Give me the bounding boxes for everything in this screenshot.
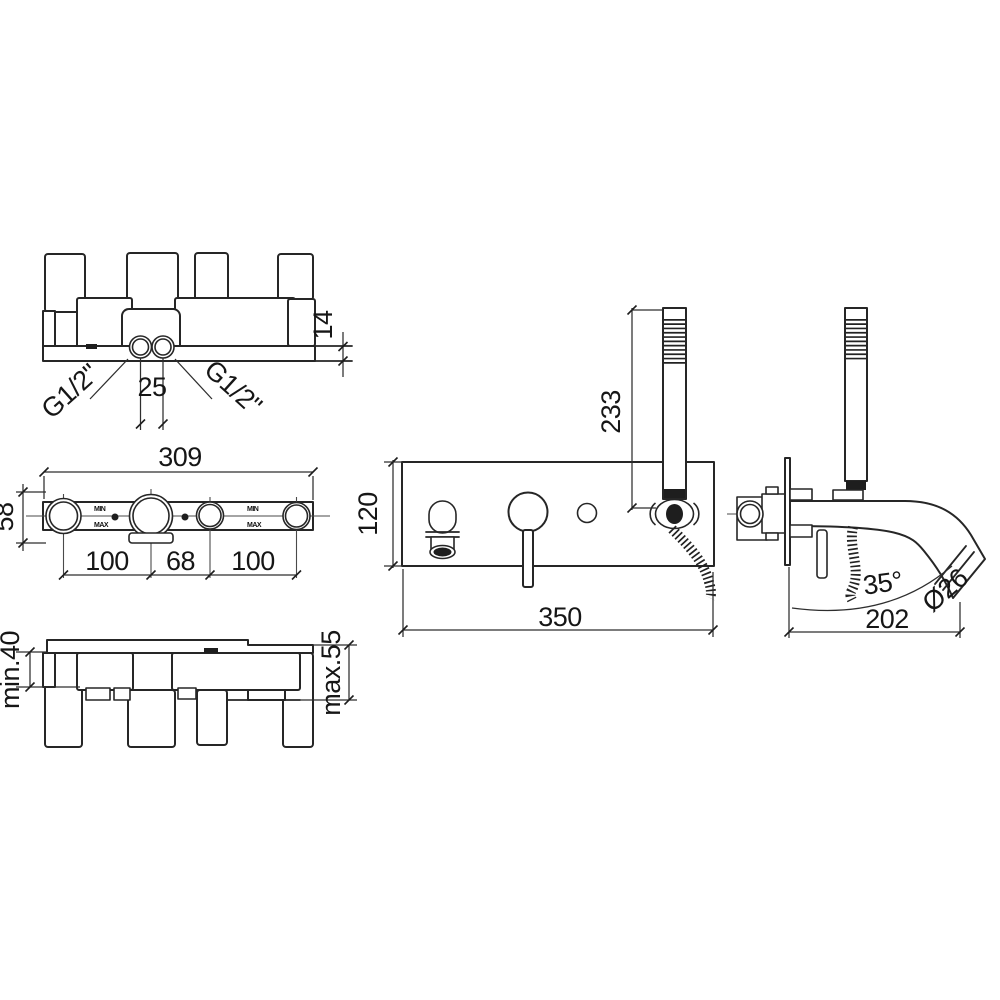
min-mark: MIN <box>247 506 259 513</box>
dim-g12-right: G1/2" <box>175 354 267 420</box>
view-body-face: MIN MAX MIN MAX 309 58 100 <box>0 442 330 580</box>
handle-lever <box>523 530 533 587</box>
body-depth-outline <box>43 640 313 747</box>
rail-mark <box>86 344 97 349</box>
dim-58: 58 <box>0 484 46 551</box>
max-mark: MAX <box>247 522 262 529</box>
dim-max55-label: max.55 <box>316 630 346 716</box>
holder-arm <box>833 490 863 500</box>
dim-25-label: 25 <box>137 372 166 402</box>
handle-lever-side <box>817 530 827 578</box>
dim-100-right-label: 100 <box>231 546 275 576</box>
dim-100-left-label: 100 <box>85 546 129 576</box>
dim-25: 25 <box>136 358 168 430</box>
dim-min40-label: min.40 <box>0 631 25 709</box>
dim-120-label: 120 <box>353 492 383 536</box>
thread-label-right: G1/2" <box>199 354 268 420</box>
thread-label-left: G1/2" <box>36 358 105 424</box>
dim-202-label: 202 <box>865 604 909 634</box>
dim-100-68-100: 100 68 100 <box>59 546 301 580</box>
dim-350-label: 350 <box>538 602 582 632</box>
screw-dot <box>112 514 119 521</box>
dim-120: 120 <box>353 458 403 571</box>
min-mark: MIN <box>94 506 106 513</box>
technical-drawing-page: 25 G1/2" G1/2" 14 <box>0 0 1000 1000</box>
view-body-depth: min.40 max.55 <box>0 630 357 747</box>
dim-58-label: 58 <box>0 502 19 531</box>
valve-body-side <box>727 487 786 540</box>
aerator <box>434 548 452 557</box>
dim-233-label: 233 <box>596 390 626 434</box>
max-mark: MAX <box>94 522 109 529</box>
dim-350: 350 <box>399 569 718 637</box>
dim-14-label: 14 <box>308 310 338 340</box>
view-trim-front: 233 120 350 <box>353 306 718 638</box>
dim-68-label: 68 <box>166 546 195 576</box>
dim-g12-left: G1/2" <box>36 358 128 424</box>
view-body-front: 25 G1/2" G1/2" 14 <box>36 253 352 430</box>
dim-309-label: 309 <box>158 442 202 472</box>
handshower-side <box>833 308 867 500</box>
view-trim-side: 35° Ø26 202 <box>727 308 985 638</box>
rail-mark <box>204 648 218 653</box>
diverter-knob <box>578 504 597 523</box>
dim-309: 309 <box>40 442 318 500</box>
body-front-outline <box>43 253 352 361</box>
dim-35deg-label: 35° <box>861 565 904 600</box>
screw-dot <box>182 514 189 521</box>
bath-mixer-technical-drawing: 25 G1/2" G1/2" 14 <box>0 0 1000 1000</box>
shower-hose-side <box>850 527 855 600</box>
